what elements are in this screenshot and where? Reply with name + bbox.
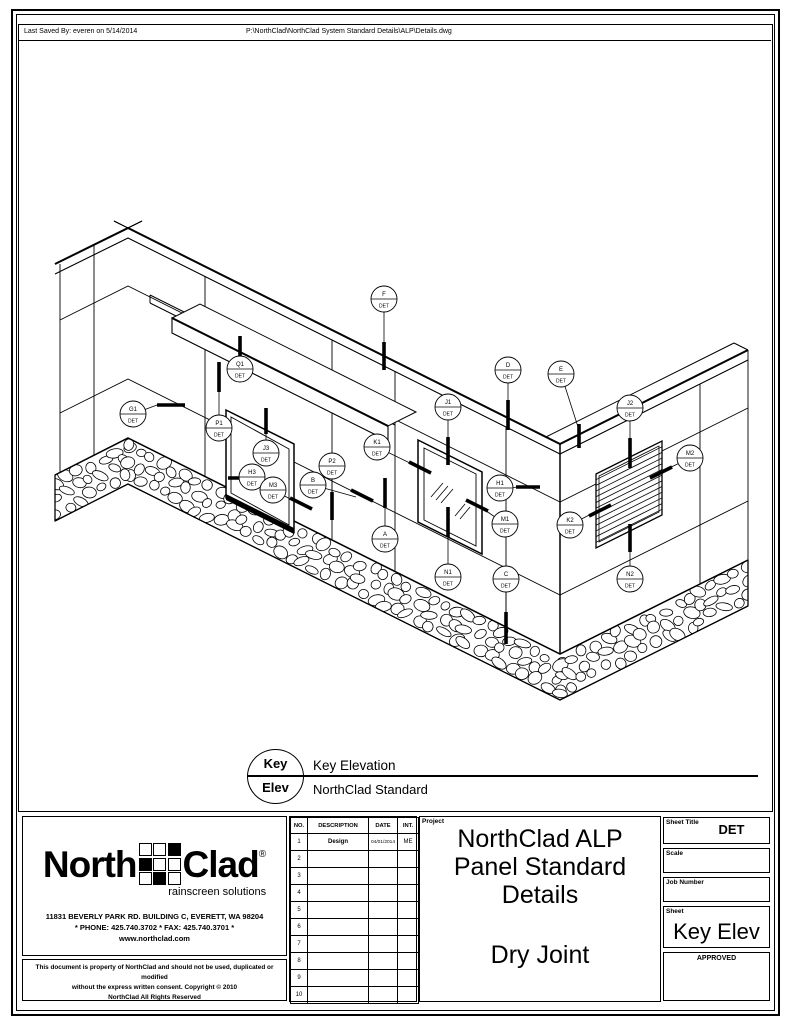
revision-cell: 8 (291, 953, 308, 970)
revision-col-date: DATE (369, 818, 398, 834)
project-title-line-1: NorthClad ALP (420, 825, 660, 853)
revision-cell (369, 851, 398, 868)
revision-row: 5 (291, 902, 419, 919)
revision-row: 4 (291, 885, 419, 902)
revision-col-int: INT. (398, 818, 419, 834)
field-job-number: Job Number (663, 877, 770, 902)
revision-row: 3 (291, 868, 419, 885)
revision-cell (369, 936, 398, 953)
field-sheet-value: Key Elev (664, 919, 769, 945)
revision-row: 8 (291, 953, 419, 970)
field-sheet-title-value: DET (694, 822, 769, 837)
revision-row: 9 (291, 970, 419, 987)
keynote-divider-line (247, 775, 758, 777)
revision-cell: 7 (291, 936, 308, 953)
keynote-title: Key Elevation (313, 758, 396, 773)
logo-text-clad: Clad (183, 846, 259, 883)
revision-cell (308, 919, 369, 936)
revision-cell (369, 953, 398, 970)
revision-cell (398, 851, 419, 868)
project-block: Project NorthClad ALP Panel Standard Det… (419, 816, 661, 1002)
northclad-logo: North Clad ® rainscreen solutions (43, 843, 266, 898)
revision-cell: 4 (291, 885, 308, 902)
logo-text-north: North (43, 846, 137, 883)
revision-cell (398, 953, 419, 970)
keynote-symbol-top: Key (248, 756, 303, 771)
project-title-line-2: Panel Standard (420, 853, 660, 881)
revision-cell (369, 970, 398, 987)
revision-row: 1Design04/01/2014ME (291, 834, 419, 851)
revision-table: NO. DESCRIPTION DATE INT. 1Design04/01/2… (289, 816, 417, 1002)
field-sheet-title: Sheet Title DET (663, 817, 770, 844)
revision-cell (308, 851, 369, 868)
revision-cell (398, 868, 419, 885)
revision-cell (398, 919, 419, 936)
revision-cell: Design (308, 834, 369, 851)
field-sheet: Sheet Key Elev (663, 906, 770, 948)
revision-cell (369, 885, 398, 902)
project-title-line-3: Details (420, 881, 660, 909)
keynote-symbol-bottom: Elev (248, 780, 303, 795)
revision-cell (308, 970, 369, 987)
revision-col-no: NO. (291, 818, 308, 834)
revision-cell (398, 885, 419, 902)
revision-row: 10 (291, 987, 419, 1004)
project-subtitle: Dry Joint (420, 941, 660, 970)
revision-cell: 9 (291, 970, 308, 987)
revision-cell: 1 (291, 834, 308, 851)
saved-info-strip: Last Saved By: everen on 5/14/2014 P:\No… (18, 24, 771, 41)
revision-cell (369, 902, 398, 919)
revision-cell (398, 987, 419, 1004)
drawing-sheet: Last Saved By: everen on 5/14/2014 P:\No… (0, 0, 791, 1024)
registered-mark: ® (259, 850, 266, 860)
field-approved: APPROVED (663, 952, 770, 1001)
logo-tagline: rainscreen solutions (43, 886, 266, 898)
revision-cell (308, 987, 369, 1004)
revision-header-row: NO. DESCRIPTION DATE INT. (291, 818, 419, 834)
file-path-text: P:\NorthClad\NorthClad System Standard D… (246, 24, 452, 40)
revision-cell: 5 (291, 902, 308, 919)
address-line: 11831 BEVERLY PARK RD. BUILDING C, EVERE… (23, 912, 286, 921)
field-approved-label: APPROVED (664, 955, 769, 962)
revision-cell (369, 868, 398, 885)
revision-cell: 2 (291, 851, 308, 868)
logo-block: North Clad ® rainscreen solutions 11831 … (22, 816, 287, 956)
project-label: Project (422, 818, 444, 825)
revision-cell: 6 (291, 919, 308, 936)
revision-cell: 10 (291, 987, 308, 1004)
revision-cell (308, 885, 369, 902)
revision-cell (308, 936, 369, 953)
drawing-frame (18, 24, 773, 812)
revision-row: 7 (291, 936, 419, 953)
revision-cell (398, 970, 419, 987)
revision-cell (308, 953, 369, 970)
revision-row: 6 (291, 919, 419, 936)
keynote-subtitle: NorthClad Standard (313, 782, 428, 797)
revision-cell: 3 (291, 868, 308, 885)
phone-line: * PHONE: 425.740.3702 * FAX: 425.740.370… (23, 923, 286, 932)
revision-cell (369, 987, 398, 1004)
website-line: www.northclad.com (23, 934, 286, 943)
field-job-number-label: Job Number (666, 879, 704, 886)
logo-grid-icon (139, 843, 181, 885)
field-scale-label: Scale (666, 850, 683, 857)
disclaimer-line-1: This document is property of NorthClad a… (23, 963, 286, 983)
keynote-symbol: Key Elev (247, 749, 304, 804)
field-scale: Scale (663, 848, 770, 873)
last-saved-text: Last Saved By: everen on 5/14/2014 (24, 24, 137, 40)
revision-cell: 04/01/2014 (369, 834, 398, 851)
disclaimer-line-2: without the express written consent. Cop… (23, 983, 286, 993)
project-title: NorthClad ALP Panel Standard Details (420, 825, 660, 909)
revision-cell (398, 936, 419, 953)
revision-cell (308, 868, 369, 885)
revision-cell: ME (398, 834, 419, 851)
revision-cell (308, 902, 369, 919)
disclaimer-block: This document is property of NorthClad a… (22, 959, 287, 1001)
revision-row: 2 (291, 851, 419, 868)
disclaimer-line-3: NorthClad All Rights Reserved (23, 993, 286, 1003)
revision-cell (369, 919, 398, 936)
field-sheet-label: Sheet (666, 908, 684, 915)
revision-cell (398, 902, 419, 919)
revision-table-body: 1Design04/01/2014ME2345678910 (291, 834, 419, 1004)
revision-col-description: DESCRIPTION (308, 818, 369, 834)
